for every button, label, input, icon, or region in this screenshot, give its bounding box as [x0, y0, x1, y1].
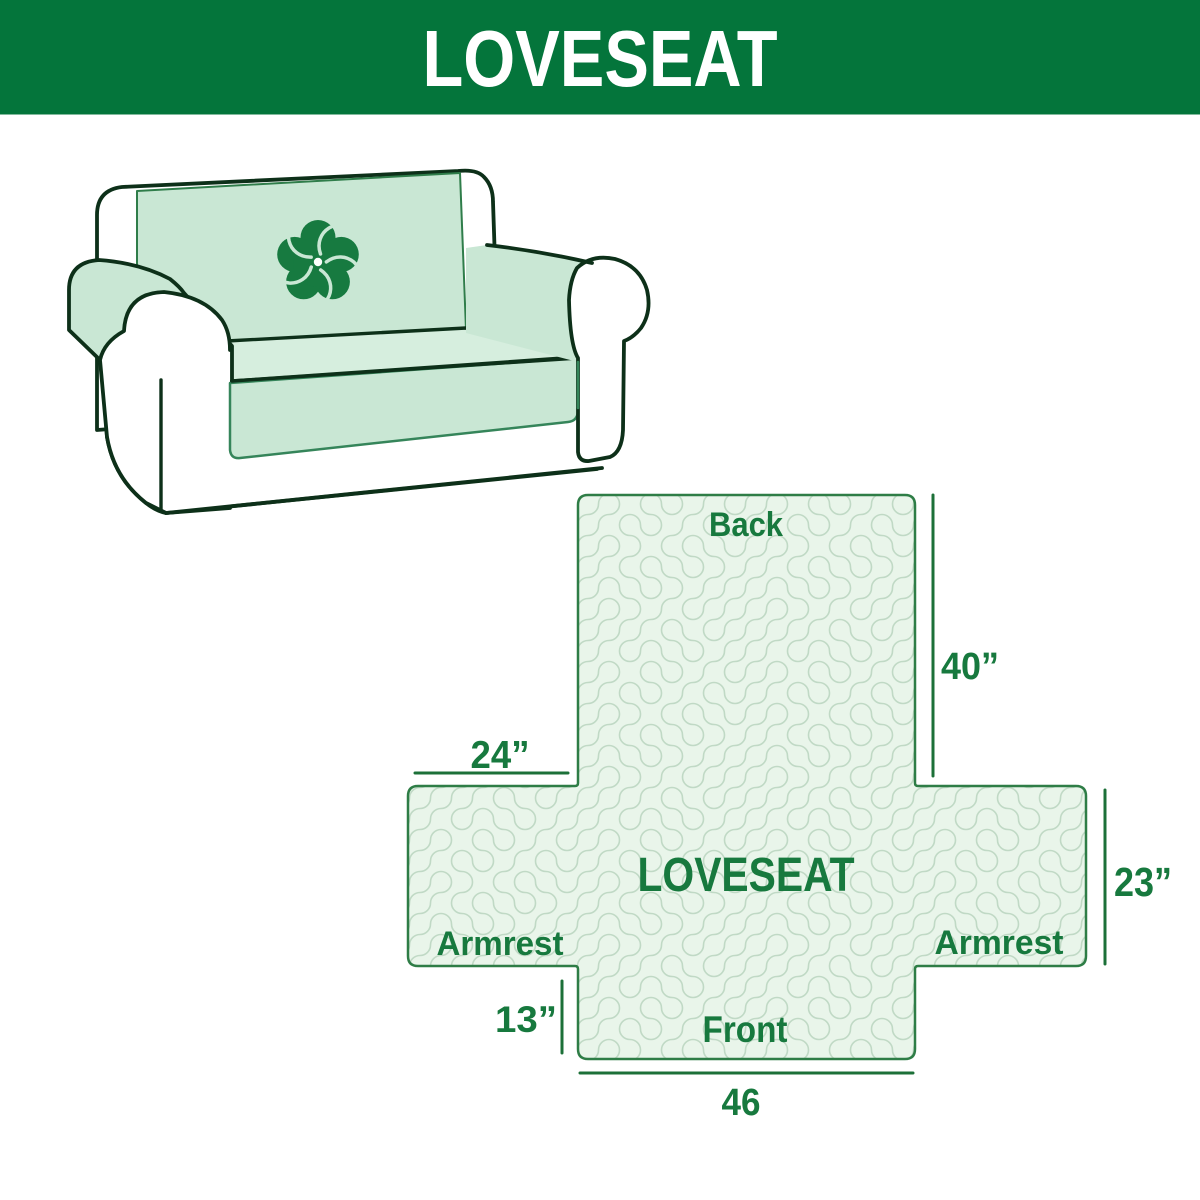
svg-text:Back: Back	[709, 506, 783, 544]
svg-text:23”: 23”	[1114, 859, 1172, 905]
svg-text:Armrest: Armrest	[437, 925, 564, 963]
svg-text:LOVESEAT: LOVESEAT	[638, 849, 855, 902]
svg-text:46: 46	[722, 1082, 761, 1124]
svg-text:Front: Front	[703, 1009, 788, 1050]
svg-text:Armrest: Armrest	[935, 924, 1064, 962]
svg-text:40”: 40”	[941, 646, 999, 688]
svg-text:LOVESEAT: LOVESEAT	[423, 14, 778, 103]
svg-text:24”: 24”	[471, 734, 530, 777]
svg-text:13”: 13”	[495, 999, 557, 1040]
